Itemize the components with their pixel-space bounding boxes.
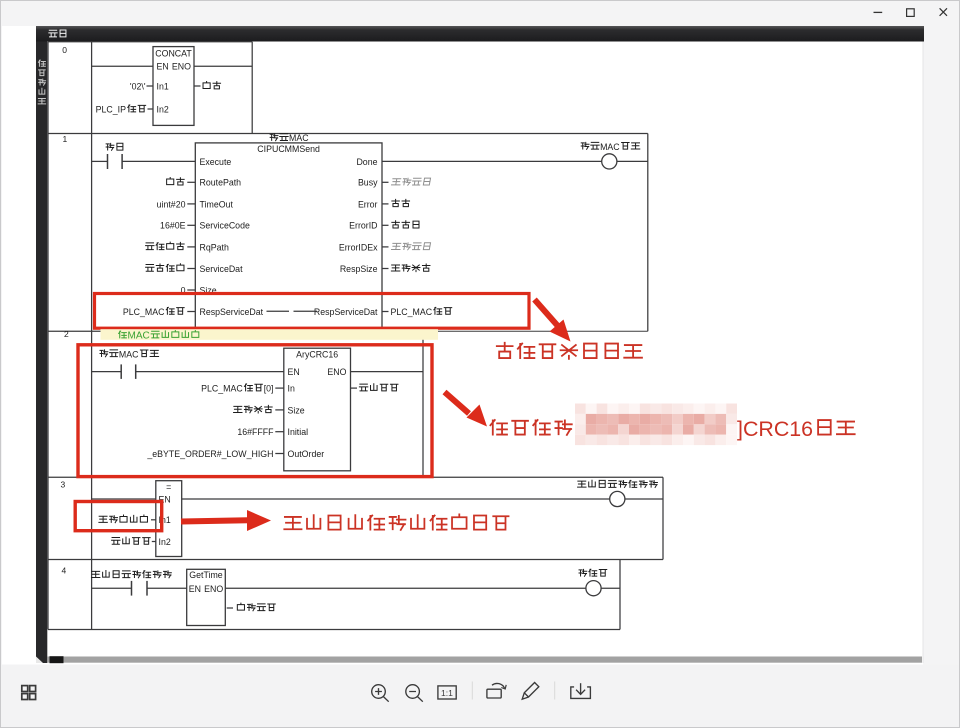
svg-text:Error: Error xyxy=(358,199,378,209)
svg-text:4: 4 xyxy=(62,565,67,575)
svg-text:PLC_IP: PLC_IP xyxy=(96,105,126,115)
svg-text:0: 0 xyxy=(62,45,67,55)
svg-text:]CRC16: ]CRC16 xyxy=(737,417,813,441)
svg-text:ENO: ENO xyxy=(327,367,346,377)
svg-text:2: 2 xyxy=(64,329,69,339)
svg-text:ServiceCode: ServiceCode xyxy=(200,221,250,231)
svg-text:PLC_MAC: PLC_MAC xyxy=(123,307,165,317)
svg-text:CIPUCMMSend: CIPUCMMSend xyxy=(257,144,320,154)
svg-text:Initial: Initial xyxy=(288,427,309,437)
svg-text:1: 1 xyxy=(63,134,68,144)
svg-text:Execute: Execute xyxy=(200,157,232,167)
svg-text:In2: In2 xyxy=(159,537,171,547)
svg-text:3: 3 xyxy=(61,479,66,489)
svg-text:_eBYTE_ORDER#_LOW_HIGH: _eBYTE_ORDER#_LOW_HIGH xyxy=(146,449,273,459)
svg-text:MAC: MAC xyxy=(289,133,309,143)
svg-text:PLC_MAC: PLC_MAC xyxy=(391,307,433,317)
svg-text:RespServiceDat: RespServiceDat xyxy=(314,307,378,317)
svg-text:EN: EN xyxy=(157,62,169,72)
svg-text:16#FFFF: 16#FFFF xyxy=(237,427,274,437)
svg-text:PLC_MAC: PLC_MAC xyxy=(201,384,243,394)
svg-text:16#0E: 16#0E xyxy=(160,221,186,231)
svg-text:ENO: ENO xyxy=(172,62,191,72)
svg-text:ENO: ENO xyxy=(204,584,223,594)
svg-text:EN: EN xyxy=(189,584,201,594)
svg-text:GetTime: GetTime xyxy=(189,570,223,580)
svg-text:MAC: MAC xyxy=(119,349,139,359)
svg-text:RespSize: RespSize xyxy=(340,264,378,274)
svg-text:RoutePath: RoutePath xyxy=(200,178,242,188)
svg-text:OutOrder: OutOrder xyxy=(288,449,325,459)
svg-text:In2: In2 xyxy=(157,105,169,115)
svg-text:1:1: 1:1 xyxy=(441,688,453,698)
svg-text:MAC: MAC xyxy=(600,142,620,152)
svg-text:ErrorID: ErrorID xyxy=(349,221,377,231)
svg-text:TimeOut: TimeOut xyxy=(200,199,234,209)
svg-text:=: = xyxy=(166,482,171,492)
svg-text:Busy: Busy xyxy=(358,178,378,188)
svg-text:In: In xyxy=(288,384,295,394)
svg-text:RqPath: RqPath xyxy=(200,242,229,252)
svg-text:uint#20: uint#20 xyxy=(157,199,186,209)
svg-text:CONCAT: CONCAT xyxy=(155,49,192,59)
svg-text:Size: Size xyxy=(288,405,305,415)
svg-text:MAC: MAC xyxy=(128,331,150,342)
svg-text:ErrorIDEx: ErrorIDEx xyxy=(339,242,378,252)
svg-text:ServiceDat: ServiceDat xyxy=(200,264,244,274)
svg-text:'02\': '02\' xyxy=(130,82,146,92)
svg-text:EN: EN xyxy=(288,367,300,377)
svg-text:RespServiceDat: RespServiceDat xyxy=(200,307,264,317)
svg-text:[0]: [0] xyxy=(264,384,274,394)
svg-text:AryCRC16: AryCRC16 xyxy=(296,350,338,360)
svg-text:Done: Done xyxy=(356,157,377,167)
svg-text:In1: In1 xyxy=(157,82,169,92)
